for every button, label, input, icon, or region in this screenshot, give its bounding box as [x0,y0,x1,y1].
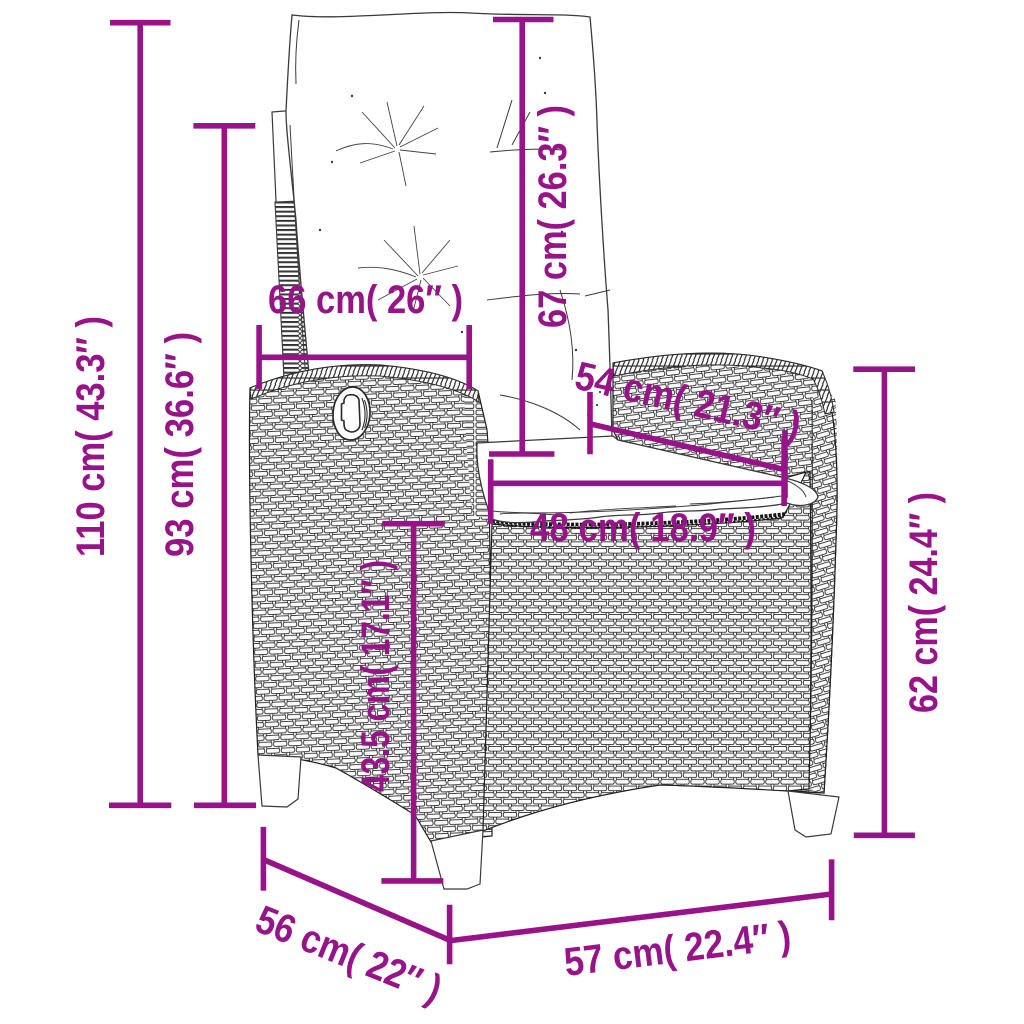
svg-text:48 cm( 18.9″ ): 48 cm( 18.9″ ) [530,506,756,550]
svg-text:66 cm( 26″ ): 66 cm( 26″ ) [268,278,463,322]
svg-text:110 cm( 43.3″ ): 110 cm( 43.3″ ) [69,316,113,557]
svg-text:43.5 cm( 17.1″ ): 43.5 cm( 17.1″ ) [354,560,398,792]
svg-text:62 cm( 24.4″ ): 62 cm( 24.4″ ) [902,492,946,713]
svg-text:67 cm( 26.3″ ): 67 cm( 26.3″ ) [531,105,575,328]
svg-text:93 cm( 36.6″ ): 93 cm( 36.6″ ) [158,332,202,557]
